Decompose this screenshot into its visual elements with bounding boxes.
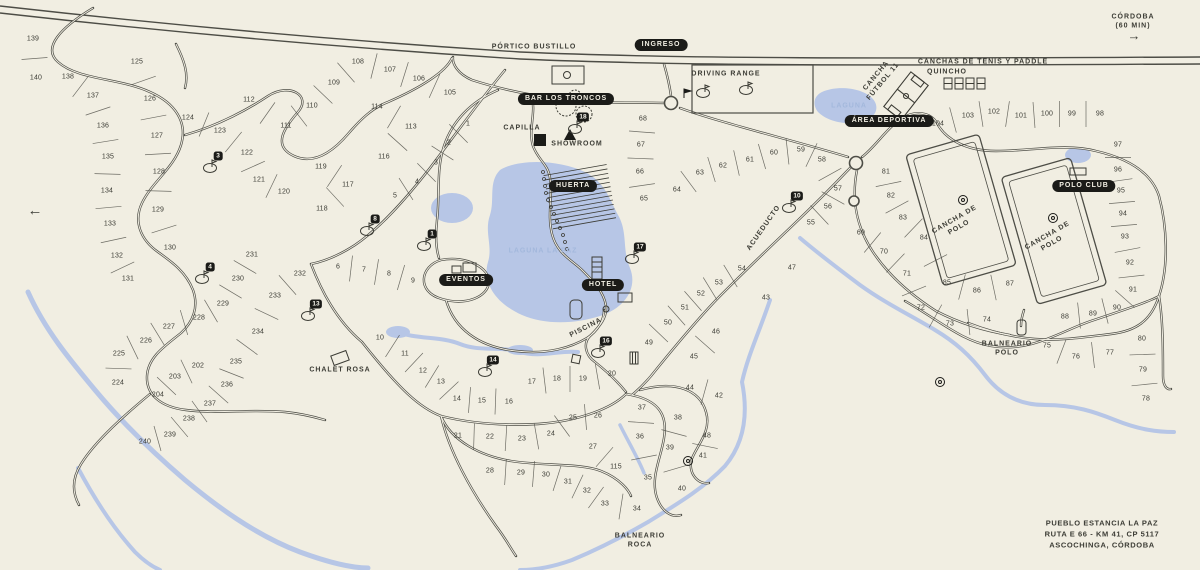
lot-number: 48 <box>703 433 711 440</box>
amenity-badge--rea-deportiva: ÁREA DEPORTIVA <box>845 115 934 127</box>
lot-number: 65 <box>640 196 648 203</box>
creek-southwest-branch <box>78 468 160 570</box>
parcel-divider <box>241 161 265 172</box>
golf-hole-badge: 1 <box>428 230 437 239</box>
lot-number: 50 <box>664 320 672 327</box>
parcel-divider <box>724 265 738 287</box>
lot-number: 62 <box>719 163 727 170</box>
lot-number: 109 <box>328 80 340 87</box>
parcel-divider <box>628 422 654 424</box>
lot-number: 15 <box>478 398 486 405</box>
map-label: LAGUNA <box>831 101 867 110</box>
parcel-divider <box>619 494 623 520</box>
lot-number: 80 <box>1138 336 1146 343</box>
lot-number: 20 <box>608 371 616 378</box>
lot-number: 61 <box>746 157 754 164</box>
lot-number: 16 <box>505 399 513 406</box>
lot-number: 116 <box>378 154 390 161</box>
parcel-divider <box>1057 339 1066 363</box>
lot-number: 73 <box>946 321 954 328</box>
lot-number: 122 <box>241 150 253 157</box>
map-poi-icon <box>936 378 945 387</box>
lot-number: 105 <box>444 90 456 97</box>
lot-number: 237 <box>204 401 216 408</box>
lot-number: 22 <box>486 434 494 441</box>
parcel-divider <box>260 102 275 123</box>
parcel-divider <box>468 387 470 413</box>
lot-number: 113 <box>405 124 417 131</box>
lot-number: 224 <box>112 380 124 387</box>
lot-number: 83 <box>899 215 907 222</box>
map-label: DRIVING RANGE <box>691 69 760 78</box>
parcel-divider <box>1119 275 1145 278</box>
map-poi-icon <box>1049 214 1058 223</box>
lot-number: 127 <box>151 133 163 140</box>
lot-number: 17 <box>528 379 536 386</box>
lot-number: 90 <box>1113 305 1121 312</box>
lot-number: 81 <box>882 169 890 176</box>
parcel-divider <box>695 336 715 353</box>
water-layer <box>28 88 1174 570</box>
parcel-divider <box>734 150 740 175</box>
lot-number: 76 <box>1072 354 1080 361</box>
lot-number: 10 <box>376 335 384 342</box>
parcel-divider <box>401 62 409 87</box>
parcel-divider <box>350 256 353 282</box>
creek-balneario-roca-branch <box>620 425 644 473</box>
lot-number: 230 <box>232 276 244 283</box>
lot-number: 227 <box>163 324 175 331</box>
lot-number: 85 <box>943 280 951 287</box>
parcel-divider <box>505 459 507 485</box>
lot-number: 136 <box>97 123 109 130</box>
lot-number: 89 <box>1089 311 1097 318</box>
lot-number: 106 <box>413 76 425 83</box>
parcel-divider <box>534 424 538 450</box>
map-address-block: PUEBLO ESTANCIA LA PAZ RUTA E 66 - KM 41… <box>1045 519 1160 552</box>
parcel-divider <box>111 262 134 273</box>
lot-number: 128 <box>153 169 165 176</box>
lot-number: 132 <box>111 253 123 260</box>
lot-number: 66 <box>636 169 644 176</box>
lot-number: 86 <box>973 288 981 295</box>
lot-number: 12 <box>419 368 427 375</box>
lot-number: 108 <box>352 59 364 66</box>
map-poi-icon <box>959 196 968 205</box>
lot-number: 19 <box>579 376 587 383</box>
parcel-divider <box>96 206 122 208</box>
golf-hole-badge: 14 <box>487 356 499 365</box>
lot-number: 56 <box>824 204 832 211</box>
parcel-divider <box>131 76 156 85</box>
parcel-divider <box>886 201 909 213</box>
golf-green-icon <box>302 308 315 321</box>
golf-flag-icon <box>684 89 691 98</box>
parcel-divider <box>371 53 377 78</box>
parcel-divider <box>95 174 121 175</box>
lot-number: 235 <box>230 359 242 366</box>
lot-number: 231 <box>246 252 258 259</box>
golf-green-icon <box>697 85 710 98</box>
parcel-divider <box>553 466 561 491</box>
golf-hole-badge: 4 <box>206 263 215 272</box>
map-label: BALNEARIO ROCA <box>615 532 665 551</box>
parcel-divider <box>152 225 177 233</box>
lot-number: 54 <box>738 266 746 273</box>
lot-number: 238 <box>183 416 195 423</box>
lot-number: 53 <box>715 280 723 287</box>
amenity-badge-polo-club: POLO CLUB <box>1052 180 1115 192</box>
parcel-divider <box>959 274 966 299</box>
parcel-divider <box>629 131 655 133</box>
parcel-divider <box>1130 354 1156 355</box>
parcel-divider <box>1115 248 1141 253</box>
lot-number: 137 <box>87 93 99 100</box>
lot-number: 97 <box>1114 142 1122 149</box>
lot-number: 30 <box>542 472 550 479</box>
lot-number: 34 <box>633 506 641 513</box>
parcel-divider <box>145 153 171 154</box>
parcel-divider <box>225 132 241 152</box>
parcel-divider <box>326 187 344 206</box>
golf-green-icon <box>418 238 431 251</box>
lot-number: 60 <box>770 150 778 157</box>
highway-ruta-e66 <box>0 6 1200 65</box>
amenity-badge-hotel: HOTEL <box>582 279 624 291</box>
parcel-divider <box>387 106 400 128</box>
lot-number: 3 <box>434 160 438 167</box>
parcel-divider <box>1111 224 1137 226</box>
parcel-divider <box>595 364 599 390</box>
golf-hole-badge: 10 <box>791 192 803 201</box>
lot-number: 104 <box>932 121 944 128</box>
parcel-divider <box>979 101 983 127</box>
lot-number: 46 <box>712 329 720 336</box>
lot-number: 8 <box>387 271 391 278</box>
map-label: CANCHAS DE TENIS Y PADDLE <box>918 57 1048 66</box>
map-label: CAPILLA <box>503 123 540 132</box>
parcel-divider <box>234 260 256 273</box>
parcel-divider <box>692 443 717 448</box>
lot-number: 77 <box>1106 350 1114 357</box>
parcel-divider <box>388 133 407 150</box>
lot-number: 233 <box>269 293 281 300</box>
parcel-divider <box>554 415 569 436</box>
parcel-divider <box>786 139 789 165</box>
lot-number: 135 <box>102 154 114 161</box>
map-label: LAGUNA LA PAZ <box>509 246 578 255</box>
lot-number: 119 <box>315 164 327 171</box>
parcel-divider <box>1132 383 1158 386</box>
roundabout-ingreso <box>665 97 678 110</box>
lot-number: 2 <box>447 140 451 147</box>
parcel-divider <box>374 259 378 285</box>
parcel-divider <box>664 465 689 472</box>
lot-number: 99 <box>1068 111 1076 118</box>
lot-number: 78 <box>1142 396 1150 403</box>
parcel-divider <box>991 275 996 300</box>
lot-number: 92 <box>1126 260 1134 267</box>
parcel-divider <box>86 107 111 115</box>
lot-number: 112 <box>243 97 255 104</box>
parcel-divider <box>219 285 241 298</box>
lot-number: 23 <box>518 436 526 443</box>
lot-number: 202 <box>192 363 204 370</box>
parcel-divider <box>1102 298 1108 323</box>
parcel-divider <box>279 275 296 295</box>
parcel-divider <box>822 192 845 205</box>
lot-number: 7 <box>362 267 366 274</box>
parcel-divider <box>141 115 167 120</box>
parcel-divider <box>887 254 905 273</box>
address-line-3: ASCOCHINGA, CÓRDOBA <box>1045 540 1160 551</box>
lot-number: 226 <box>140 338 152 345</box>
lot-number: 24 <box>547 431 555 438</box>
lot-number: 88 <box>1061 314 1069 321</box>
parcel-divider <box>1091 342 1094 368</box>
map-label: CHALET ROSA <box>309 365 370 374</box>
map-label: ← <box>28 201 43 221</box>
parcel-divider <box>106 368 132 369</box>
lot-number: 101 <box>1015 113 1027 120</box>
parcel-divider <box>1109 201 1135 203</box>
parcel-divider <box>101 237 126 243</box>
lot-number: 52 <box>697 291 705 298</box>
lot-number: 43 <box>762 295 770 302</box>
lot-number: 115 <box>610 464 622 471</box>
parcel-divider <box>127 336 138 359</box>
parcel-divider <box>266 174 277 197</box>
tennis-courts <box>944 78 985 89</box>
golf-green-icon <box>783 200 796 213</box>
parcel-divider <box>876 181 901 186</box>
lot-number: 107 <box>384 67 396 74</box>
lot-number: 35 <box>644 475 652 482</box>
parcel-divider <box>22 58 48 60</box>
parcel-divider <box>314 86 333 104</box>
amenity-badge-ingreso: INGRESO <box>635 39 688 51</box>
parcel-divider <box>950 107 957 132</box>
parcel-divider <box>543 368 546 394</box>
lot-number: 31 <box>564 479 572 486</box>
lot-number: 4 <box>415 179 419 186</box>
parcel-divider <box>154 426 161 451</box>
lot-number: 240 <box>139 439 151 446</box>
lot-number: 5 <box>393 193 397 200</box>
golf-hole-badge: 13 <box>310 300 322 309</box>
parcel-divider <box>758 144 765 169</box>
lot-number: 32 <box>583 488 591 495</box>
lot-number: 95 <box>1117 188 1125 195</box>
polo-club-building <box>1070 168 1086 175</box>
parcel-divider <box>327 165 341 187</box>
map-label: QUINCHO <box>927 67 967 76</box>
lot-number: 57 <box>834 186 842 193</box>
lot-number: 79 <box>1139 367 1147 374</box>
lot-number: 45 <box>690 354 698 361</box>
parcel-divider <box>628 158 654 159</box>
lot-number: 38 <box>674 415 682 422</box>
lot-number: 69 <box>857 230 865 237</box>
parcel-divider <box>219 369 243 378</box>
map-label: → <box>1128 27 1141 45</box>
lot-number: 68 <box>639 116 647 123</box>
lot-number: 234 <box>252 329 264 336</box>
parcel-divider <box>204 300 217 322</box>
golf-hole-badge: 3 <box>214 152 223 161</box>
parcel-divider <box>572 475 583 498</box>
lot-number: 1 <box>466 121 470 128</box>
lot-number: 64 <box>673 187 681 194</box>
lot-number: 74 <box>983 317 991 324</box>
lot-number: 140 <box>30 75 42 82</box>
lot-number: 18 <box>553 376 561 383</box>
parcel-divider <box>495 389 496 415</box>
lot-number: 102 <box>988 109 1000 116</box>
lot-number: 59 <box>797 147 805 154</box>
lot-number: 27 <box>589 444 597 451</box>
lot-number: 118 <box>316 206 328 213</box>
lot-number: 13 <box>437 379 445 386</box>
lot-number: 51 <box>681 305 689 312</box>
lot-number: 39 <box>666 445 674 452</box>
creek-southwest <box>28 292 368 568</box>
lot-number: 129 <box>152 207 164 214</box>
lot-number: 40 <box>678 486 686 493</box>
lot-number: 229 <box>217 301 229 308</box>
lot-number: 110 <box>306 103 318 110</box>
parcel-divider <box>181 360 192 383</box>
lot-number: 100 <box>1041 111 1053 118</box>
lot-number: 228 <box>193 315 205 322</box>
lot-number: 36 <box>636 434 644 441</box>
pond-creek-1 <box>386 326 410 338</box>
lot-number: 133 <box>104 221 116 228</box>
parcel-divider <box>532 461 534 487</box>
lot-number: 239 <box>164 432 176 439</box>
lot-number: 9 <box>411 278 415 285</box>
gatehouse-building <box>552 66 584 84</box>
lot-number: 72 <box>917 305 925 312</box>
golf-green-icon <box>626 251 639 264</box>
golf-green-icon <box>569 121 582 134</box>
lot-number: 93 <box>1121 234 1129 241</box>
lot-number: 120 <box>278 189 290 196</box>
lot-number: 58 <box>818 157 826 164</box>
lot-number: 71 <box>903 271 911 278</box>
lot-number: 117 <box>342 182 354 189</box>
lot-number: 82 <box>887 193 895 200</box>
lot-number: 6 <box>336 264 340 271</box>
lot-number: 124 <box>182 115 194 122</box>
map-label: PÓRTICO BUSTILLO <box>492 42 577 51</box>
parcel-divider <box>474 424 475 450</box>
events-buildings <box>452 263 476 273</box>
lot-number: 33 <box>601 501 609 508</box>
map-label: SHOWROOM <box>551 139 602 148</box>
parcel-divider <box>1006 101 1010 127</box>
lot-number: 42 <box>715 393 723 400</box>
parcel-divider <box>255 308 279 319</box>
lot-number: 98 <box>1096 111 1104 118</box>
lot-number: 131 <box>122 276 134 283</box>
golf-hole-badge: 18 <box>577 113 589 122</box>
lot-number: 130 <box>164 245 176 252</box>
amenity-badge-eventos: EVENTOS <box>439 274 493 286</box>
roundabout-acueducto <box>849 196 859 206</box>
golf-hole-badge: 8 <box>371 215 380 224</box>
golf-hole-badge: 16 <box>600 337 612 346</box>
lot-number: 204 <box>152 392 164 399</box>
parcel-divider <box>629 184 655 188</box>
lot-number: 203 <box>169 374 181 381</box>
golf-green-icon <box>740 82 753 95</box>
lot-number: 125 <box>131 59 143 66</box>
parcel-divider <box>93 139 119 143</box>
lot-number: 55 <box>807 220 815 227</box>
lot-number: 114 <box>371 104 383 111</box>
lot-number: 91 <box>1129 287 1137 294</box>
lot-number: 28 <box>486 468 494 475</box>
lot-number: 14 <box>453 396 461 403</box>
lot-number: 21 <box>454 433 462 440</box>
lot-number: 103 <box>962 113 974 120</box>
parcel-divider <box>701 379 708 404</box>
lot-number: 26 <box>594 413 602 420</box>
lot-number: 94 <box>1119 211 1127 218</box>
lot-number: 236 <box>221 382 233 389</box>
roundabout-deportiva <box>850 157 863 170</box>
lot-number: 63 <box>696 170 704 177</box>
golf-green-icon <box>204 160 217 173</box>
lot-number: 11 <box>401 351 409 358</box>
address-line-2: RUTA E 66 - KM 41, CP 5117 <box>1045 530 1160 541</box>
lot-number: 37 <box>638 405 646 412</box>
parcel-divider <box>584 404 586 430</box>
estate-map: PUEBLO ESTANCIA LA PAZ RUTA E 66 - KM 41… <box>0 0 1200 570</box>
parcel-divider <box>199 112 209 136</box>
lot-number: 29 <box>517 470 525 477</box>
lot-number: 111 <box>280 123 291 130</box>
lot-number: 232 <box>294 271 306 278</box>
lot-number: 75 <box>1043 343 1051 350</box>
capilla-building <box>534 134 546 146</box>
golf-green-icon <box>361 223 374 236</box>
lot-number: 139 <box>27 36 39 43</box>
lot-number: 123 <box>214 128 226 135</box>
lot-number: 49 <box>645 340 653 347</box>
amenity-badge-bar-los-troncos: BAR LOS TRONCOS <box>518 93 614 105</box>
golf-hole-badge: 17 <box>634 243 646 252</box>
golf-green-icon <box>196 271 209 284</box>
lot-number: 84 <box>920 235 928 242</box>
lot-number: 126 <box>144 96 156 103</box>
parcel-divider <box>385 335 399 357</box>
lot-number: 67 <box>637 142 645 149</box>
parcel-divider <box>708 157 716 182</box>
parcel-divider <box>397 265 404 290</box>
parcel-divider <box>505 425 507 451</box>
lot-number: 121 <box>253 177 265 184</box>
lot-number: 47 <box>788 265 796 272</box>
lot-number: 87 <box>1006 281 1014 288</box>
golf-green-icon <box>479 364 492 377</box>
lot-number: 44 <box>686 385 694 392</box>
lot-number: 70 <box>880 249 888 256</box>
chalet-rosa-building <box>331 351 349 366</box>
lot-number: 134 <box>101 188 113 195</box>
lot-number: 41 <box>699 453 707 460</box>
